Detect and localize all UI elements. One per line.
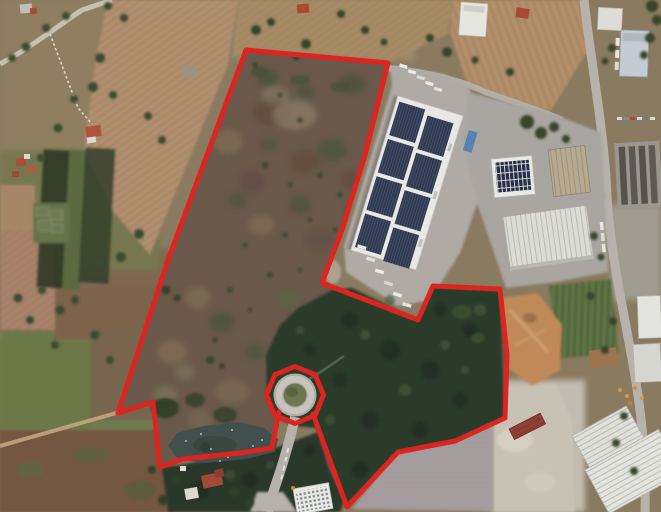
satellite-canvas[interactable]: [0, 0, 661, 512]
ridged-building: [548, 145, 590, 196]
white-building-south: [184, 487, 199, 500]
east-building: [633, 343, 661, 382]
large-warehouse: [503, 205, 594, 270]
white-building-northeast: [597, 7, 622, 30]
white-building-north: [459, 2, 488, 37]
parking-rows: [614, 141, 661, 209]
satellite-map: [0, 0, 661, 512]
east-building: [637, 296, 661, 339]
pv-grid-building: [491, 155, 535, 197]
